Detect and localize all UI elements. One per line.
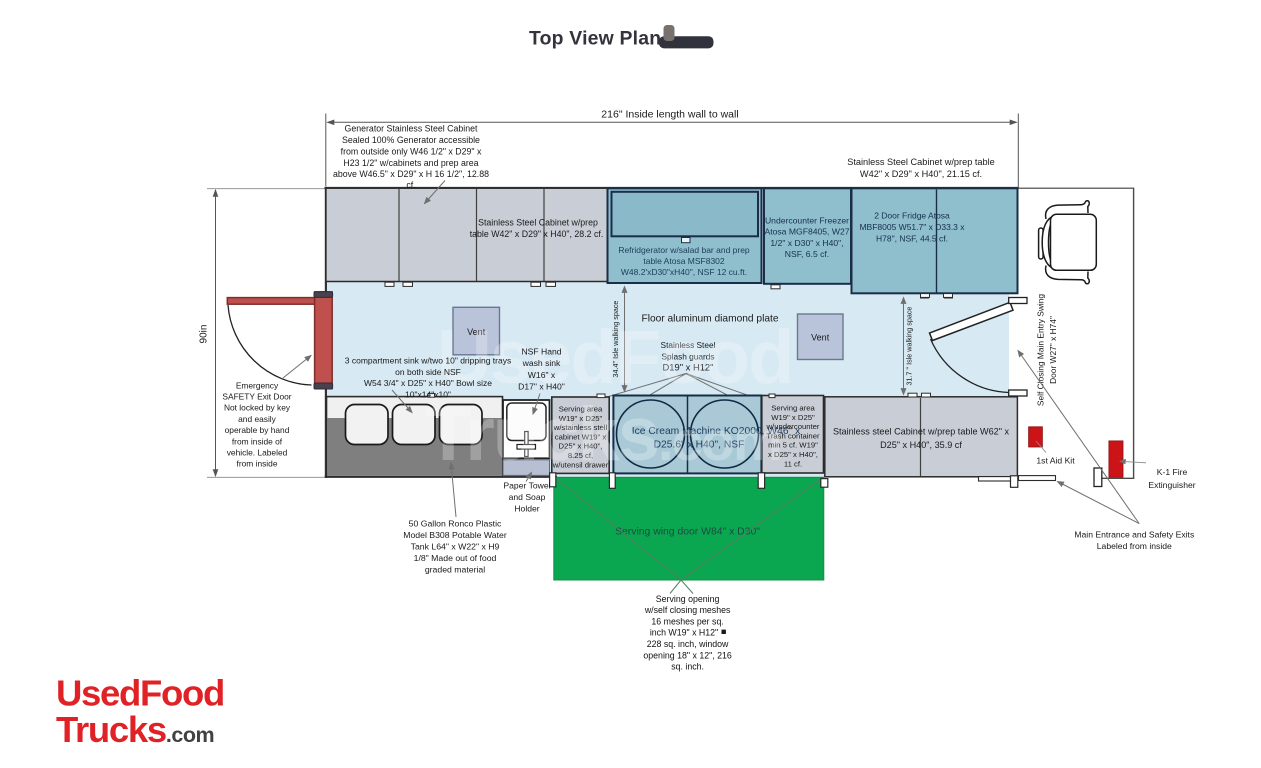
svg-text:UsedFood: UsedFood xyxy=(56,673,224,714)
svg-text:Stainless steel Cabinet w/prep: Stainless steel Cabinet w/prep table W62… xyxy=(833,427,1010,437)
svg-text:Not locked by key: Not locked by key xyxy=(224,403,291,413)
svg-text:H78", NSF, 44.5 cf.: H78", NSF, 44.5 cf. xyxy=(876,233,948,243)
svg-text:vehicle. Labeled: vehicle. Labeled xyxy=(227,448,288,458)
svg-text:w/self closing meshes: w/self closing meshes xyxy=(644,605,731,615)
svg-text:Undercounter Freezer: Undercounter Freezer xyxy=(765,215,849,225)
svg-text:Tank L64" x W22" x H9: Tank L64" x W22" x H9 xyxy=(411,542,500,552)
svg-text:cf.: cf. xyxy=(406,180,415,190)
svg-text:3 compartment sink w/two 10" d: 3 compartment sink w/two 10" dripping tr… xyxy=(345,356,511,366)
svg-text:Emergency: Emergency xyxy=(236,380,279,390)
svg-text:16 meshes per sq.: 16 meshes per sq. xyxy=(651,616,723,626)
svg-text:Trucks.com: Trucks.com xyxy=(56,709,214,750)
svg-text:Refridgerator w/salad bar and: Refridgerator w/salad bar and prep xyxy=(618,245,750,255)
svg-text:Stainless Steel Cabinet w/prep: Stainless Steel Cabinet w/prep xyxy=(478,217,598,227)
svg-text:Holder: Holder xyxy=(514,504,539,514)
svg-text:11 cf.: 11 cf. xyxy=(784,459,802,468)
svg-text:D17" x H40": D17" x H40" xyxy=(518,381,565,391)
svg-text:from inside of: from inside of xyxy=(232,436,283,446)
svg-text:above W46.5" x D29" x H 16 1/2: above W46.5" x D29" x H 16 1/2", 12.88 xyxy=(333,169,489,179)
svg-text:W54 3/4" x D25" x H40" Bowl si: W54 3/4" x D25" x H40" Bowl size xyxy=(364,378,492,388)
svg-text:table W42" x D29" x H40", 28.2: table W42" x D29" x H40", 28.2 cf. xyxy=(470,229,604,239)
svg-text:Top View Plan: Top View Plan xyxy=(529,28,661,50)
svg-text:NSF, 6.5 cf.: NSF, 6.5 cf. xyxy=(785,249,829,259)
svg-text:Labeled from inside: Labeled from inside xyxy=(1097,541,1172,551)
svg-text:W42" x D29" x H40", 21.15 cf.: W42" x D29" x H40", 21.15 cf. xyxy=(860,169,982,179)
svg-text:Extinguisher: Extinguisher xyxy=(1148,480,1195,490)
svg-text:Vent: Vent xyxy=(811,333,830,343)
svg-text:50 Gallon Ronco Plastic: 50 Gallon Ronco Plastic xyxy=(409,519,502,529)
svg-text:1/8" Made out of food: 1/8" Made out of food xyxy=(414,553,497,563)
svg-text:H23 1/2" w/cabinets and prep a: H23 1/2" w/cabinets and prep area xyxy=(343,158,478,168)
svg-text:Stainless Steel Cabinet w/prep: Stainless Steel Cabinet w/prep table xyxy=(847,157,995,167)
svg-text:1/2" x D30" x H40",: 1/2" x D30" x H40", xyxy=(770,238,843,248)
svg-text:W48.2'xD30"xH40", NSF 12 cu.ft: W48.2'xD30"xH40", NSF 12 cu.ft. xyxy=(621,267,747,277)
svg-text:graded material: graded material xyxy=(425,565,485,575)
svg-text:90in: 90in xyxy=(199,325,210,344)
svg-text:Door W27" x H74": Door W27" x H74" xyxy=(1048,316,1058,384)
svg-text:Atosa MGF8405, W27: Atosa MGF8405, W27 xyxy=(764,227,849,237)
svg-text:opening 18" x 12", 216: opening 18" x 12", 216 xyxy=(643,650,732,660)
svg-text:K-1 Fire: K-1 Fire xyxy=(1157,467,1188,477)
svg-text:Sealed 100% Generator accessib: Sealed 100% Generator accessible xyxy=(342,135,480,145)
svg-text:MBF8005 W51.7" x D33.3 x: MBF8005 W51.7" x D33.3 x xyxy=(859,222,965,232)
svg-text:D25" x H40", 35.9 cf: D25" x H40", 35.9 cf xyxy=(880,440,962,450)
svg-text:Serving wing door W84" x D30": Serving wing door W84" x D30" xyxy=(615,527,760,538)
svg-text:Paper Towel: Paper Towel xyxy=(503,481,550,491)
svg-text:operable by hand: operable by hand xyxy=(225,425,290,435)
svg-text:W16" x: W16" x xyxy=(528,370,556,380)
svg-text:Main Entrance and Safety Exit: Main Entrance and Safety Exits xyxy=(1074,530,1194,540)
svg-text:Model B308 Potable Water: Model B308 Potable Water xyxy=(403,530,507,540)
svg-text:from outside only W46 1/2" x D: from outside only W46 1/2" x D29" x xyxy=(341,147,482,157)
svg-text:2 Door Fridge Atosa: 2 Door Fridge Atosa xyxy=(874,211,950,221)
svg-text:and easily: and easily xyxy=(238,414,277,424)
svg-text:SAFETY Exit Door: SAFETY Exit Door xyxy=(222,392,291,402)
svg-text:Generator Stainless Steel Cabi: Generator Stainless Steel Cabinet xyxy=(344,124,478,134)
svg-text:NSF Hand: NSF Hand xyxy=(521,347,561,357)
svg-text:table Atosa MSF8302: table Atosa MSF8302 xyxy=(643,256,725,266)
svg-text:31.7 " Isle walking space: 31.7 " Isle walking space xyxy=(905,307,914,386)
svg-text:216" Inside length wall to wal: 216" Inside length wall to wall xyxy=(601,109,738,121)
svg-text:Self Closing Main Entry Swing: Self Closing Main Entry Swing xyxy=(1036,294,1046,407)
svg-text:and Soap: and Soap xyxy=(509,492,546,502)
svg-text:10"x14"x10": 10"x14"x10" xyxy=(405,389,451,399)
svg-text:sq. inch.: sq. inch. xyxy=(671,662,704,672)
svg-text:1st Aid Kit: 1st Aid Kit xyxy=(1036,456,1075,466)
svg-text:wash sink: wash sink xyxy=(522,358,561,368)
svg-text:inch W19" x H12": inch W19" x H12" xyxy=(650,628,718,638)
svg-text:228 sq. inch, window: 228 sq. inch, window xyxy=(647,639,729,649)
svg-text:from inside: from inside xyxy=(237,459,278,469)
svg-text:Serving opening: Serving opening xyxy=(656,594,720,604)
svg-text:on both side NSF: on both side NSF xyxy=(395,367,461,377)
